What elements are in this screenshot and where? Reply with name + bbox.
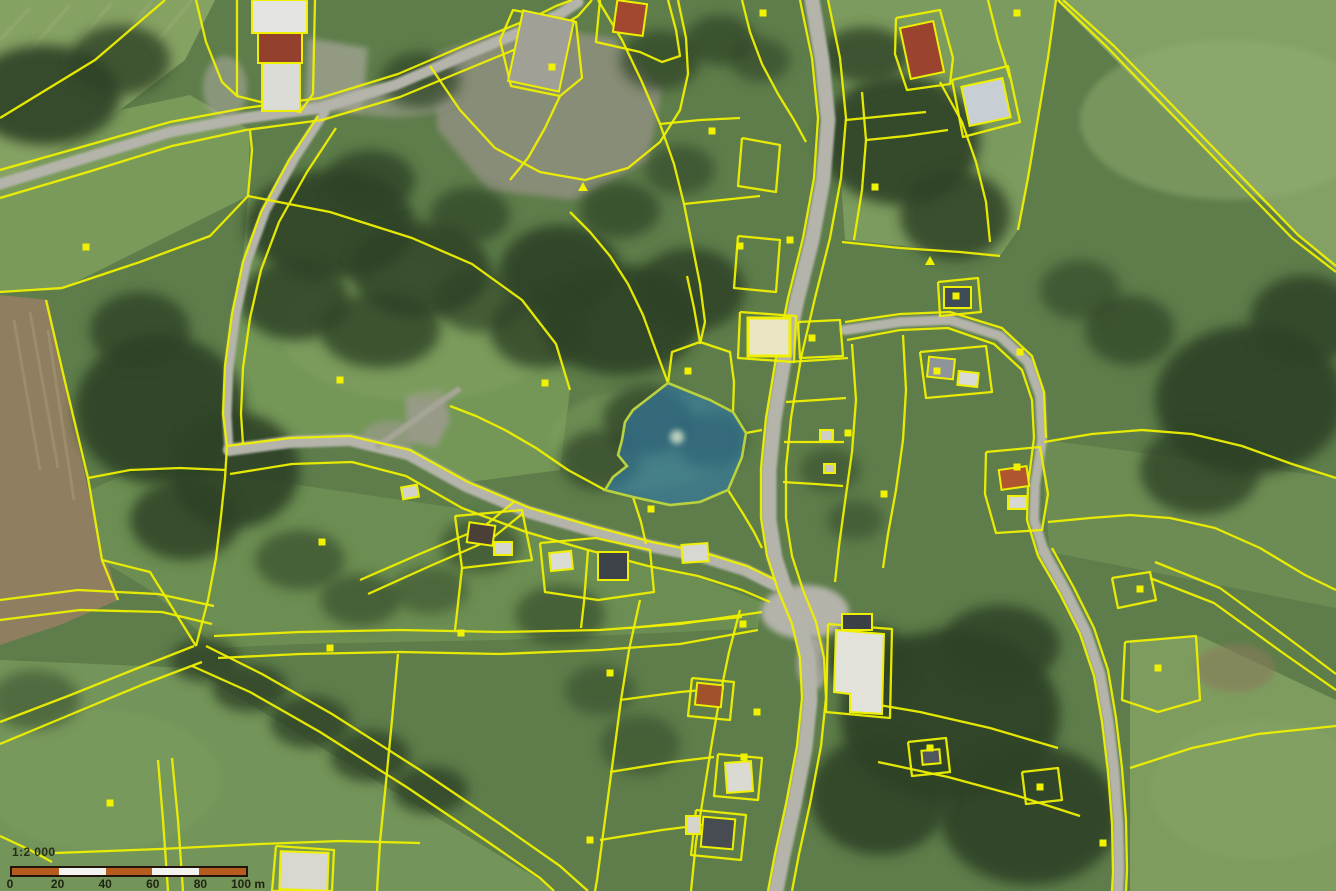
building (258, 33, 302, 63)
building (824, 464, 835, 473)
parcel-marker (740, 621, 747, 628)
building (820, 430, 833, 441)
parcel-marker (1137, 586, 1144, 593)
parcel-marker (1014, 10, 1021, 17)
parcel-marker (319, 539, 326, 546)
building (681, 543, 708, 563)
building (252, 0, 307, 33)
map-viewport[interactable]: 1:2 000 020406080100 m (0, 0, 1336, 891)
building (1008, 496, 1026, 509)
parcel-marker (587, 837, 594, 844)
parcel-marker (549, 64, 556, 71)
building (598, 552, 628, 580)
building (262, 63, 300, 111)
building (494, 542, 512, 555)
building (549, 551, 573, 571)
parcel-marker (809, 335, 816, 342)
parcel-marker (953, 293, 960, 300)
parcel-marker (1155, 665, 1162, 672)
selected-parcel-centroid (670, 430, 684, 444)
building (957, 371, 978, 387)
parcel-marker (927, 745, 934, 752)
parcel-marker (737, 243, 744, 250)
parcel-marker (1037, 784, 1044, 791)
parcel-marker (934, 368, 941, 375)
parcel-marker (648, 506, 655, 513)
parcel-marker (1017, 349, 1024, 356)
parcel-marker (337, 377, 344, 384)
aerial-cadastral-map[interactable] (0, 0, 1336, 891)
building (467, 522, 496, 545)
building (961, 78, 1010, 126)
building (279, 851, 328, 891)
building (927, 357, 955, 380)
parcel-marker (872, 184, 879, 191)
building (613, 0, 647, 36)
parcel-marker (327, 645, 334, 652)
parcel-marker (1100, 840, 1107, 847)
parcel-marker (760, 10, 767, 17)
parcel-marker (845, 430, 852, 437)
parcel-marker (685, 368, 692, 375)
parcel-marker (458, 630, 465, 637)
parcel-marker (1014, 464, 1021, 471)
parcel-marker (754, 709, 761, 716)
parcel-marker (607, 670, 614, 677)
building (748, 318, 790, 356)
building (401, 485, 419, 500)
parcel-marker (542, 380, 549, 387)
building (842, 614, 872, 630)
parcel-marker (83, 244, 90, 251)
parcel-marker (787, 237, 794, 244)
parcel-marker (881, 491, 888, 498)
parcel-marker (107, 800, 114, 807)
building (725, 761, 753, 793)
parcel-marker (709, 128, 716, 135)
building (701, 817, 735, 850)
building (921, 749, 940, 765)
building (695, 683, 723, 708)
parcel-marker (741, 754, 748, 761)
building (686, 816, 700, 834)
